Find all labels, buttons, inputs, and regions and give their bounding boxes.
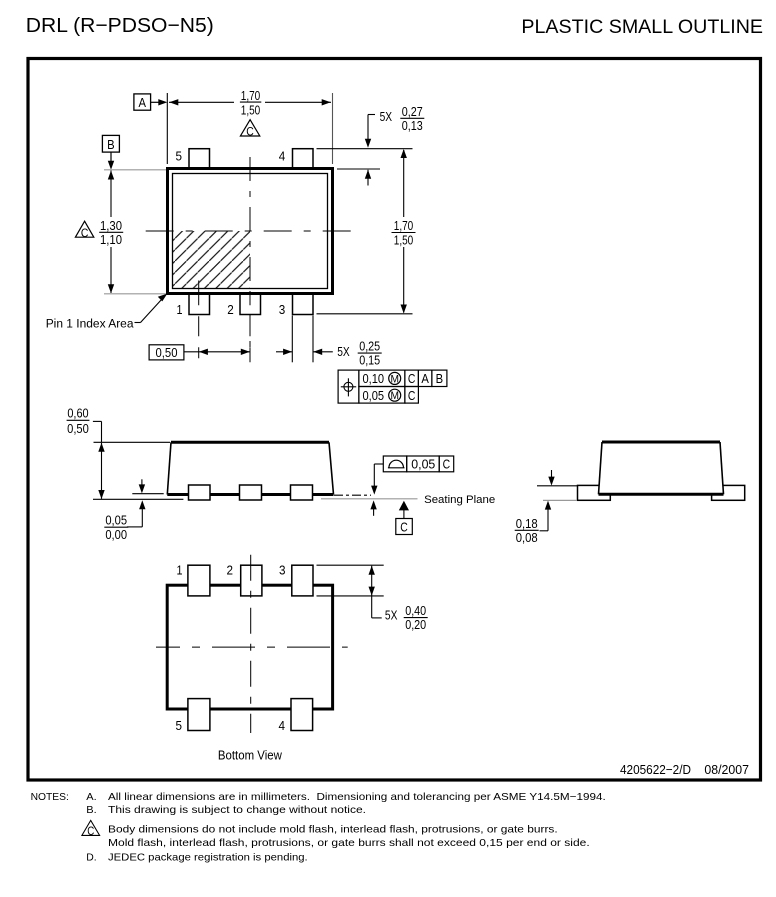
svg-text:3: 3 [279, 303, 286, 317]
svg-text:4: 4 [279, 719, 286, 733]
svg-text:All linear dimensions are in m: All linear dimensions are in millimeters… [108, 792, 606, 803]
svg-text:Body dimensions do not include: Body dimensions do not include mold flas… [108, 824, 558, 835]
svg-text:1,50: 1,50 [394, 232, 414, 247]
svg-text:B.: B. [86, 805, 96, 816]
svg-text:Pin 1 Index Area: Pin 1 Index Area [46, 317, 134, 331]
svg-text:4205622−2/D: 4205622−2/D [620, 762, 691, 777]
svg-text:0,40: 0,40 [405, 603, 426, 618]
svg-text:1,50: 1,50 [241, 102, 261, 117]
svg-text:DRL (R−PDSO−N5): DRL (R−PDSO−N5) [26, 14, 214, 37]
svg-text:0,10: 0,10 [363, 371, 385, 386]
svg-text:C: C [443, 458, 451, 472]
svg-text:Mold flash, interlead flash, p: Mold flash, interlead flash, protrusions… [108, 838, 590, 849]
svg-text:M: M [390, 373, 399, 385]
svg-text:4: 4 [279, 150, 286, 164]
svg-text:B: B [436, 372, 444, 386]
svg-text:1: 1 [177, 303, 183, 317]
svg-text:2: 2 [227, 564, 234, 578]
svg-text:0,05: 0,05 [105, 512, 127, 527]
svg-text:0,00: 0,00 [105, 527, 127, 542]
svg-text:0,60: 0,60 [67, 405, 88, 420]
svg-text:NOTES:: NOTES: [31, 792, 69, 803]
svg-text:C: C [400, 520, 408, 534]
svg-text:0,08: 0,08 [516, 530, 538, 545]
svg-text:0,13: 0,13 [402, 118, 423, 133]
svg-text:5X: 5X [337, 345, 350, 359]
svg-text:JEDEC package registration is: JEDEC package registration is pending. [108, 853, 308, 864]
svg-text:Bottom View: Bottom View [218, 748, 283, 763]
svg-text:C: C [81, 226, 89, 240]
svg-text:M: M [390, 390, 399, 402]
svg-text:0,50: 0,50 [67, 421, 89, 436]
svg-text:1,30: 1,30 [100, 218, 122, 233]
svg-text:0,18: 0,18 [516, 516, 538, 531]
svg-text:A.: A. [86, 792, 96, 803]
svg-text:D.: D. [86, 853, 96, 864]
svg-text:B: B [107, 138, 115, 152]
svg-text:C: C [408, 389, 416, 403]
svg-text:1,70: 1,70 [241, 88, 261, 103]
svg-text:2: 2 [227, 303, 234, 317]
svg-text:0,25: 0,25 [359, 339, 380, 354]
svg-text:C: C [408, 372, 416, 386]
svg-text:0,27: 0,27 [402, 104, 423, 119]
svg-text:1: 1 [177, 564, 183, 578]
svg-text:C: C [87, 826, 94, 838]
svg-text:A: A [138, 96, 146, 110]
svg-text:5: 5 [175, 150, 182, 164]
svg-text:08/2007: 08/2007 [704, 762, 749, 777]
svg-text:PLASTIC SMALL OUTLINE: PLASTIC SMALL OUTLINE [521, 17, 763, 38]
svg-text:1,10: 1,10 [100, 232, 122, 247]
svg-text:Seating Plane: Seating Plane [424, 494, 495, 506]
svg-text:5X: 5X [385, 608, 398, 622]
svg-text:1,70: 1,70 [394, 218, 414, 233]
svg-text:C: C [246, 125, 254, 139]
svg-text:0,05: 0,05 [411, 456, 435, 471]
svg-text:3: 3 [279, 564, 286, 578]
svg-text:0,20: 0,20 [405, 617, 426, 632]
svg-text:A: A [421, 372, 429, 386]
svg-text:0,15: 0,15 [359, 353, 380, 368]
svg-text:5: 5 [175, 719, 182, 733]
svg-text:0,50: 0,50 [156, 345, 178, 360]
svg-text:5X: 5X [380, 110, 393, 124]
svg-text:This drawing is subject to cha: This drawing is subject to change withou… [108, 805, 366, 816]
svg-text:0,05: 0,05 [363, 388, 385, 403]
